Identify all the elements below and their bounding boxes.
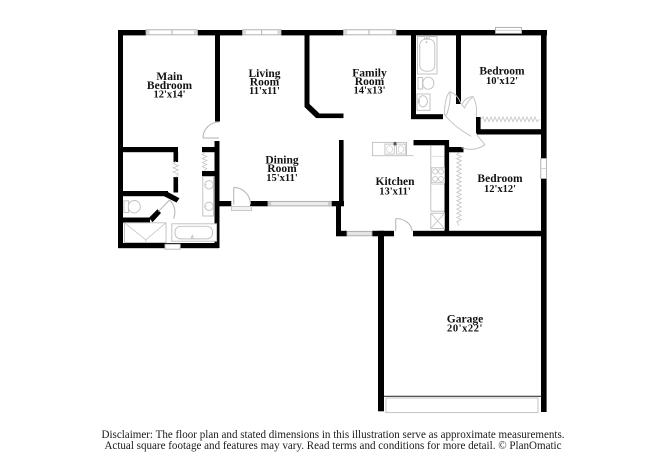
svg-text:14'x13': 14'x13' xyxy=(353,86,385,97)
svg-text:10'x12': 10'x12' xyxy=(486,76,518,87)
svg-text:Disclaimer: The floor plan and: Disclaimer: The floor plan and stated di… xyxy=(101,429,564,441)
svg-text:15'x11': 15'x11' xyxy=(266,173,298,184)
svg-text:12'x14': 12'x14' xyxy=(153,89,185,100)
svg-text:12'x12': 12'x12' xyxy=(484,184,516,195)
svg-text:13'x11': 13'x11' xyxy=(379,186,411,197)
svg-text:11'x11': 11'x11' xyxy=(249,86,280,97)
svg-text:Actual square footage and feat: Actual square footage and features may v… xyxy=(104,440,561,452)
svg-text:20'x22': 20'x22' xyxy=(447,324,483,335)
